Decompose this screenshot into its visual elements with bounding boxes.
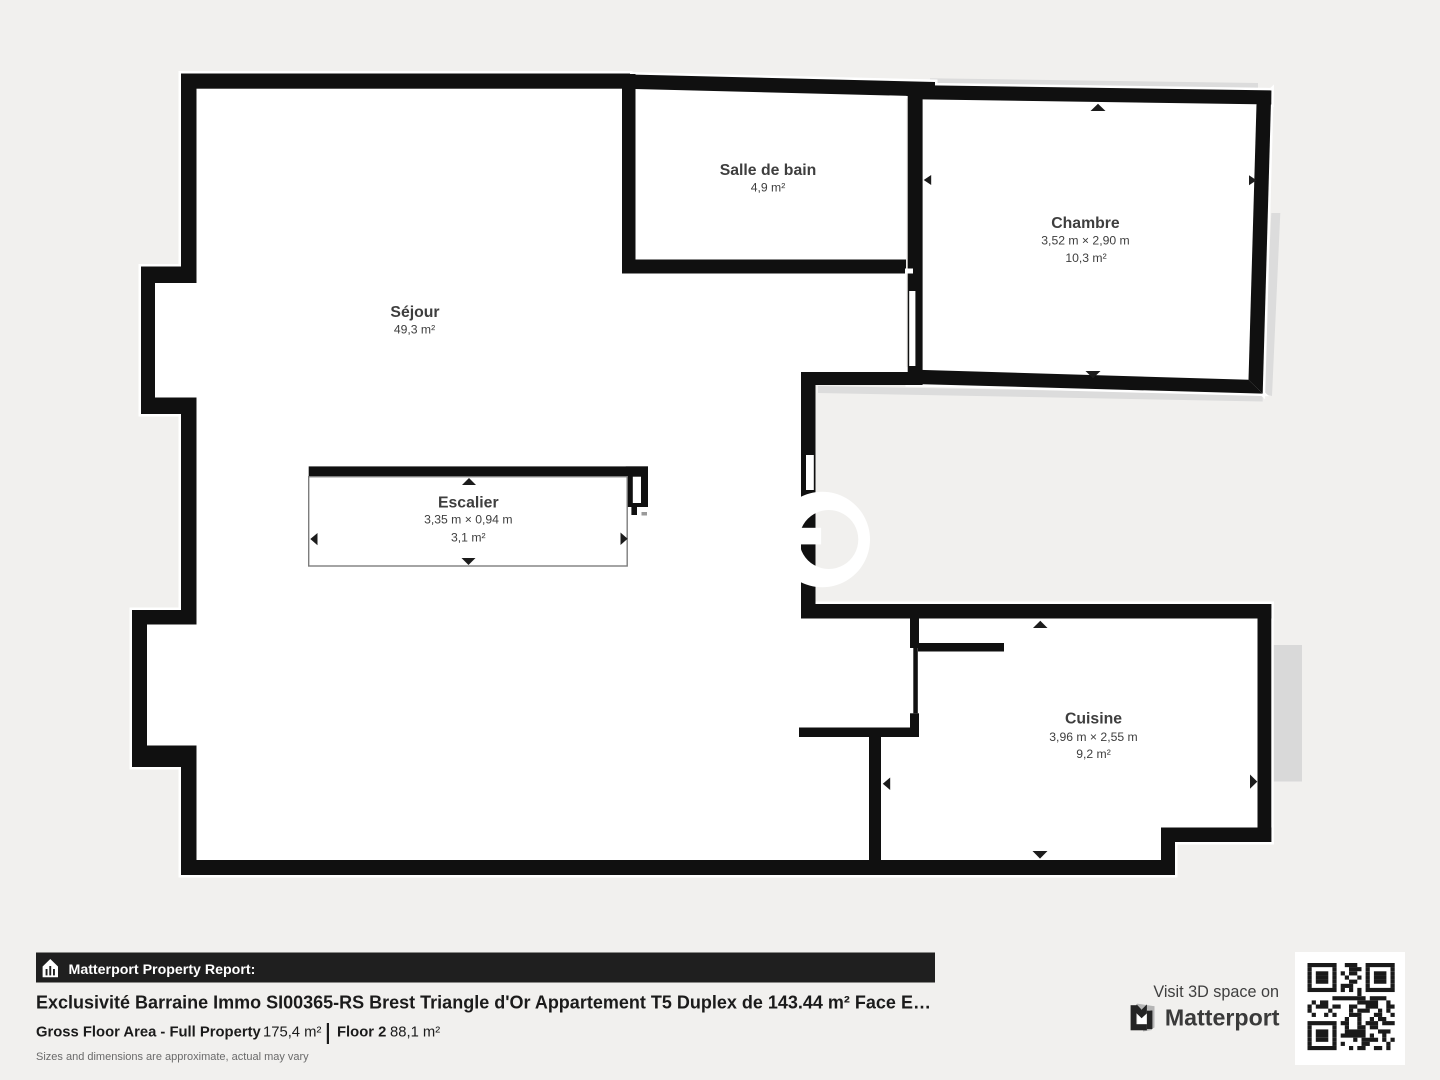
- svg-text:Sizes and dimensions are appro: Sizes and dimensions are approximate, ac…: [36, 1051, 309, 1063]
- svg-text:Matterport: Matterport: [1165, 1004, 1280, 1030]
- svg-text:3,52 m × 2,90 m: 3,52 m × 2,90 m: [1041, 233, 1129, 247]
- svg-text:10,3 m²: 10,3 m²: [1065, 251, 1106, 265]
- svg-text:Escalier: Escalier: [438, 494, 499, 511]
- svg-text:9,2 m²: 9,2 m²: [1076, 747, 1111, 761]
- svg-text:3,1 m²: 3,1 m²: [451, 530, 486, 544]
- svg-text:Cuisine: Cuisine: [1065, 710, 1122, 727]
- svg-text:Salle de bain: Salle de bain: [720, 162, 817, 179]
- svg-text:Matterport Property Report:: Matterport Property Report:: [69, 962, 256, 978]
- svg-text:Floor 2: Floor 2: [337, 1024, 386, 1040]
- svg-text:Exclusivité Barraine Immo SI00: Exclusivité Barraine Immo SI00365-RS Bre…: [36, 993, 931, 1013]
- svg-text:4,9 m²: 4,9 m²: [751, 180, 786, 194]
- svg-text:Visit 3D space on: Visit 3D space on: [1153, 983, 1279, 1001]
- svg-text:3,35 m × 0,94 m: 3,35 m × 0,94 m: [424, 512, 512, 526]
- svg-text:175,4 m²: 175,4 m²: [263, 1024, 321, 1040]
- svg-text:49,3 m²: 49,3 m²: [394, 322, 435, 336]
- svg-text:Séjour: Séjour: [390, 304, 439, 321]
- svg-text:Chambre: Chambre: [1051, 215, 1120, 232]
- svg-text:Gross Floor Area - Full Proper: Gross Floor Area - Full Property: [36, 1024, 262, 1040]
- svg-text:3,96 m × 2,55 m: 3,96 m × 2,55 m: [1049, 730, 1137, 744]
- svg-text:88,1 m²: 88,1 m²: [390, 1024, 440, 1040]
